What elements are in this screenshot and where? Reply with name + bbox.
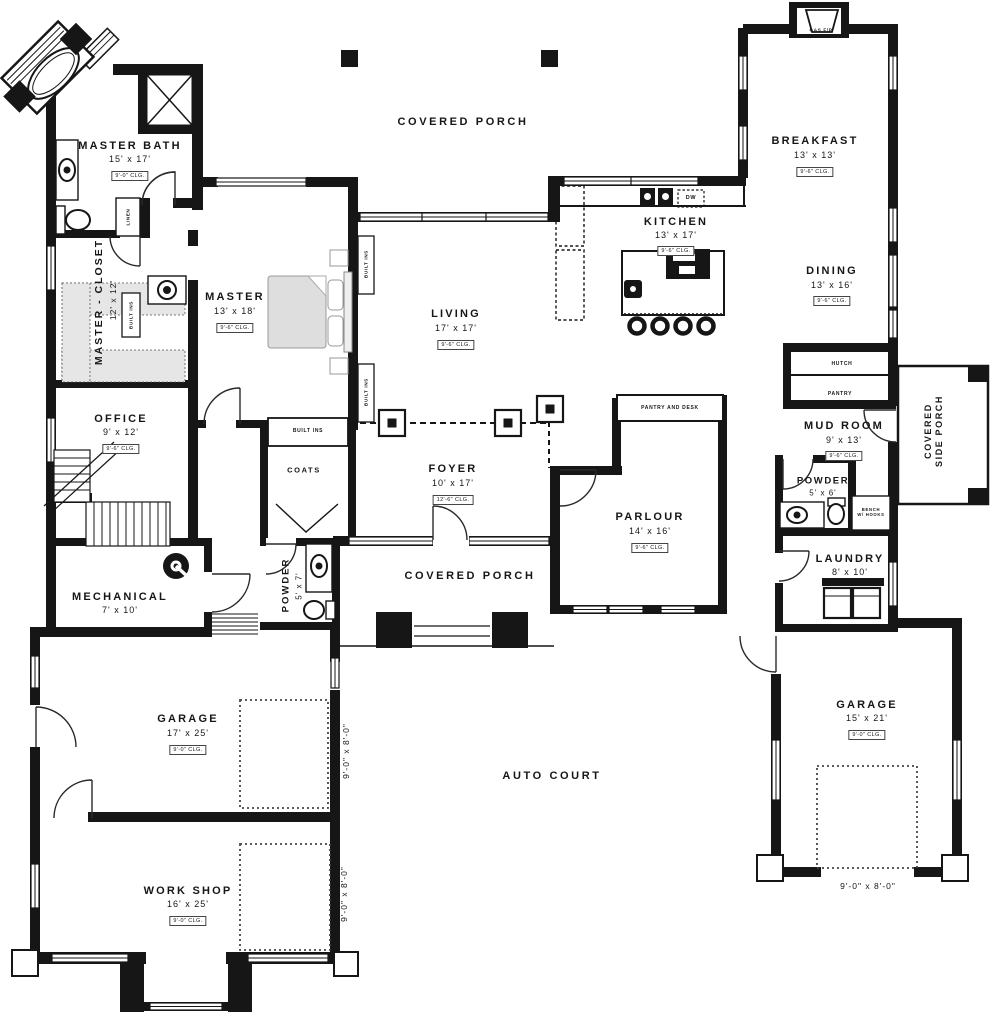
covered-porch-mid (338, 546, 554, 648)
room-label-powder-left: POWDER (281, 558, 292, 613)
label-auto-court: AUTO COURT (502, 770, 601, 782)
room-label-mechanical: MECHANICAL (72, 591, 168, 603)
room-dims-breakfast: 13' x 13' (794, 150, 836, 160)
label-built-ins-coats: BUILT INS (293, 428, 323, 434)
label-built-ins-closet: BUILT INS (129, 301, 134, 329)
shower (147, 75, 192, 125)
room-label-breakfast: BREAKFAST (771, 135, 858, 147)
label-bench-w-hooks: BENCH W/ HOOKS (857, 507, 884, 518)
clg-foyer: 12'-6" CLG. (433, 495, 474, 505)
room-label-kitchen: KITCHEN (644, 216, 708, 228)
room-dims-mechanical: 7' x 10' (102, 605, 138, 615)
clg-work-shop: 9'-0" CLG. (169, 916, 206, 926)
clg-dining: 9'-6" CLG. (813, 296, 850, 306)
floor-plan: MASTER BATH 15' x 17' 9'-0" CLG. MASTER … (0, 0, 1000, 1023)
master-bath-toilet (56, 206, 90, 234)
water-heater (163, 553, 189, 579)
room-dims-garage-left: 17' x 25' (167, 728, 209, 738)
label-gas-fireplace: GAS F/P (810, 28, 833, 33)
clg-parlour: 9'-6" CLG. (631, 543, 668, 553)
room-dims-living: 17' x 17' (435, 323, 477, 333)
corner-tub (2, 22, 119, 114)
coats-closet (268, 418, 348, 532)
clg-breakfast: 9'-6" CLG. (796, 167, 833, 177)
room-label-powder-right: POWDER (797, 476, 849, 487)
room-dims-work-shop: 16' x 25' (167, 899, 209, 909)
dim-garage-right-door: 9'-0" x 8'-0" (840, 881, 896, 891)
stairs (44, 442, 170, 546)
room-dims-master-closet: 12' x 12' (108, 280, 118, 320)
label-pantry: PANTRY (828, 391, 852, 397)
master-bath-vanity (56, 140, 78, 200)
clg-mud-room: 9'-6" CLG. (825, 451, 862, 461)
room-label-dining: DINING (806, 265, 858, 277)
clg-master-bath: 9'-0" CLG. (111, 171, 148, 181)
label-covered-side-porch: COVERED SIDE PORCH (923, 395, 946, 467)
room-dims-master-bath: 15' x 17' (109, 154, 151, 164)
master-bed (268, 250, 352, 374)
room-label-laundry: LAUNDRY (816, 553, 885, 565)
room-dims-laundry: 8' x 10' (832, 567, 868, 577)
label-covered-porch-mid: COVERED PORCH (405, 570, 536, 582)
room-label-office: OFFICE (94, 413, 148, 425)
room-label-master-closet: MASTER - CLOSET (93, 239, 105, 365)
gas-fireplace (789, 2, 849, 38)
room-dims-parlour: 14' x 16' (629, 526, 671, 536)
room-dims-foyer: 10' x 17' (432, 478, 474, 488)
room-dims-office: 9' x 12' (103, 427, 139, 437)
label-coats: COATS (287, 466, 321, 475)
clg-kitchen: 9'-6" CLG. (657, 246, 694, 256)
front-door-opening (433, 536, 469, 546)
cooktop (640, 188, 673, 205)
label-hutch: HUTCH (832, 361, 853, 367)
washer-dryer (822, 578, 884, 618)
clg-garage-left: 9'-0" CLG. (169, 745, 206, 755)
label-covered-porch-top: COVERED PORCH (398, 116, 529, 128)
powder-left-fixtures (304, 544, 335, 619)
room-label-living: LIVING (431, 308, 481, 320)
dim-workshop-door: 9'-0" x 8'-0" (339, 866, 349, 922)
colonnade (360, 396, 563, 468)
room-label-work-shop: WORK SHOP (144, 885, 233, 897)
garage-steps (212, 614, 258, 634)
clg-garage-right: 9'-0" CLG. (848, 730, 885, 740)
porch-top-columns (341, 50, 558, 67)
room-label-foyer: FOYER (429, 463, 478, 475)
label-pantry-and-desk: PANTRY AND DESK (641, 405, 699, 411)
room-dims-powder-right: 5' x 6' (809, 489, 836, 498)
clg-master: 9'-6" CLG. (216, 323, 253, 333)
label-built-ins-master-2: BUILT INS (364, 378, 369, 406)
dim-garage-left-door: 9'-0" x 8'-0" (341, 723, 351, 779)
clg-office: 9'-6" CLG. (102, 444, 139, 454)
room-label-mud-room: MUD ROOM (804, 420, 884, 432)
room-label-garage-right: GARAGE (836, 699, 897, 711)
room-dims-garage-right: 15' x 21' (846, 713, 888, 723)
label-linen: LINEN (126, 209, 131, 226)
room-label-master-bath: MASTER BATH (78, 140, 181, 152)
room-label-garage-left: GARAGE (157, 713, 218, 725)
bay-opening (146, 952, 226, 964)
room-label-parlour: PARLOUR (616, 511, 685, 523)
label-built-ins-master-1: BUILT INS (364, 250, 369, 278)
kitchen-island (622, 249, 724, 315)
room-dims-master: 13' x 18' (214, 306, 256, 316)
room-dims-powder-left: 5' x 7' (295, 572, 304, 599)
bar-stools (630, 319, 714, 334)
label-dishwasher: DW (686, 195, 697, 201)
powder-right-fixtures (780, 498, 845, 528)
closet-vanity (148, 276, 186, 304)
room-label-master: MASTER (205, 291, 265, 303)
clg-living: 9'-6" CLG. (437, 340, 474, 350)
